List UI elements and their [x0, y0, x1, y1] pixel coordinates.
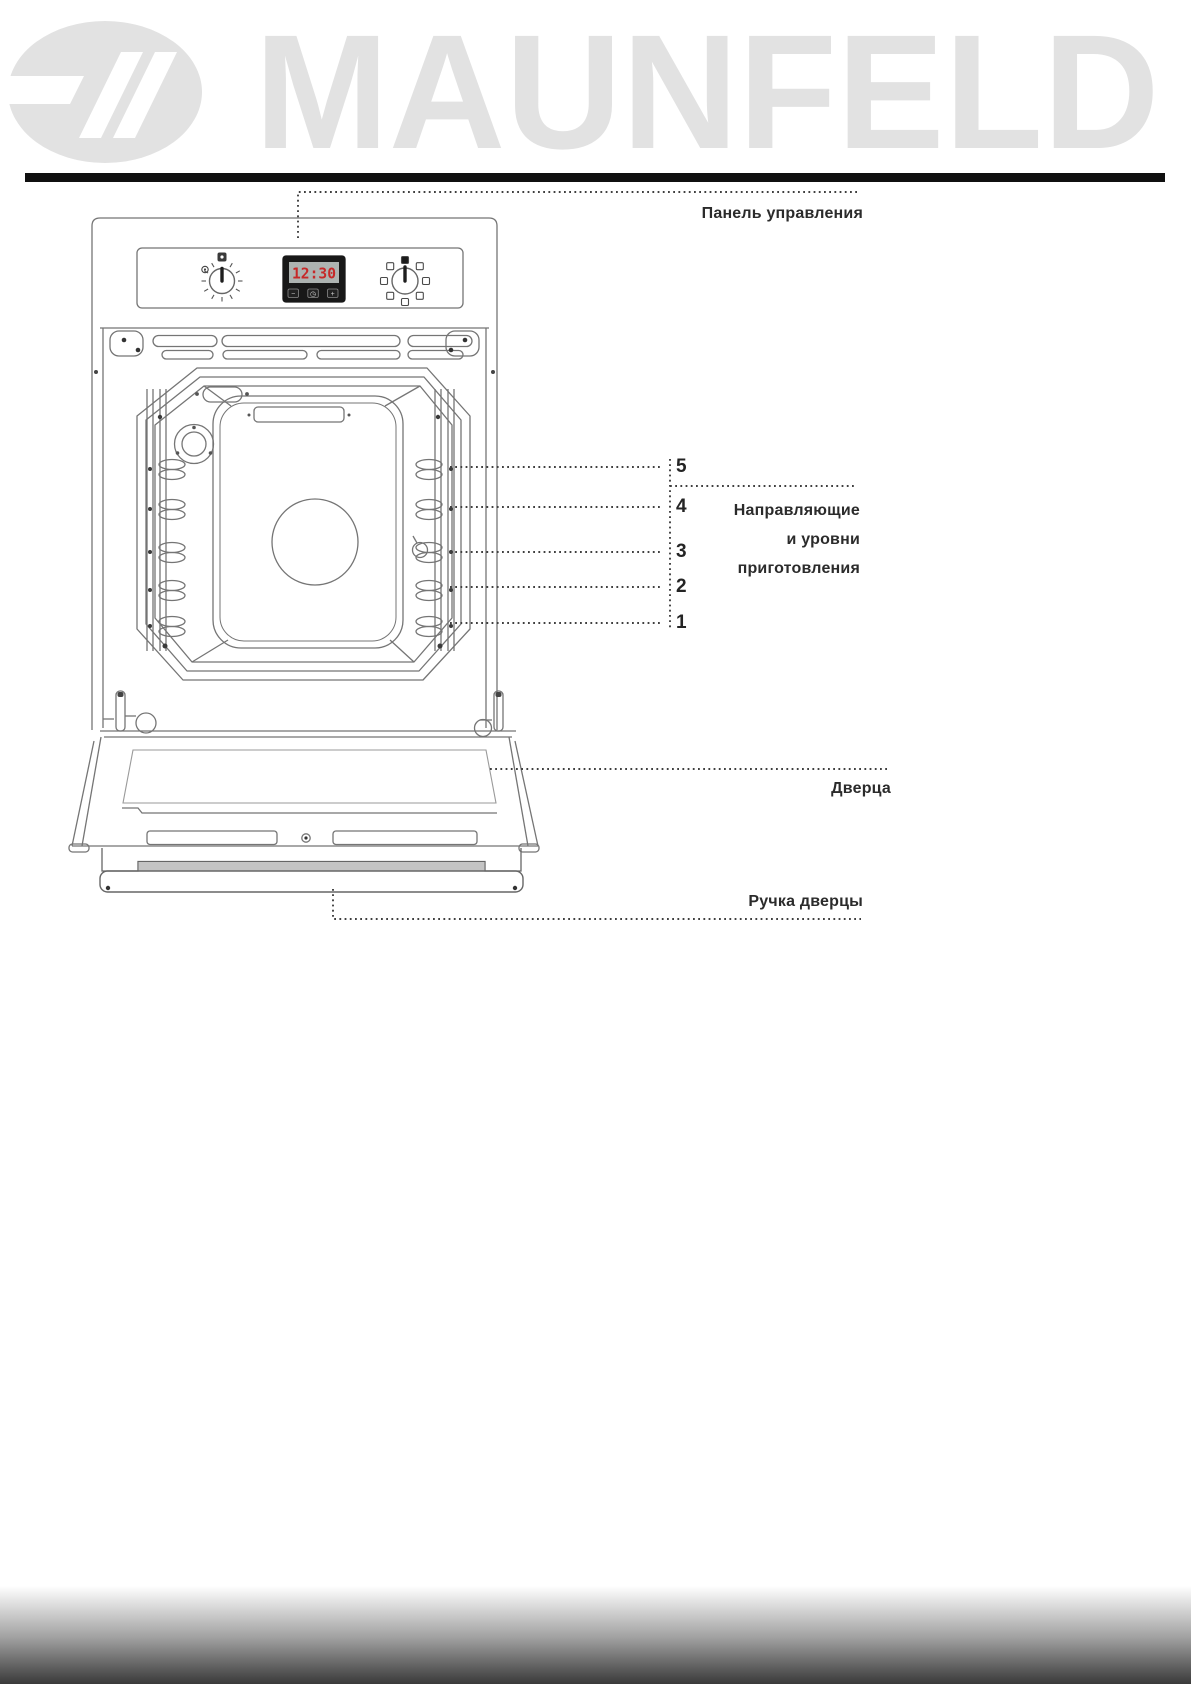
fan-intake	[175, 425, 214, 464]
manual-page: MAUNFELD	[0, 0, 1191, 1684]
timer-icon: ◷	[310, 291, 316, 298]
temperature-knob	[202, 253, 243, 302]
function-knob	[381, 257, 430, 306]
door-handle	[100, 848, 523, 892]
shelf-rails-left	[147, 389, 185, 651]
oven-diagram: 12:30 − ◷ +	[0, 0, 1191, 1684]
level-number-4: 4	[676, 496, 700, 518]
label-guides-levels: Направляющие и уровни приготовления	[680, 496, 860, 583]
grill-bracket	[254, 407, 344, 422]
label-door: Дверца	[831, 780, 891, 798]
oven-mode-icon	[218, 253, 227, 262]
top-vents	[153, 336, 472, 360]
label-guides-line2: и уровни	[787, 531, 860, 548]
label-guides-line1: Направляющие	[734, 502, 860, 519]
plus-icon: +	[331, 291, 335, 298]
fan-circle	[272, 499, 358, 585]
leader-levels	[450, 459, 670, 629]
level-number-3: 3	[676, 541, 700, 563]
display-time: 12:30	[292, 265, 336, 283]
clock-display: 12:30 − ◷ +	[283, 256, 345, 302]
level-number-5: 5	[676, 456, 700, 478]
control-panel: 12:30 − ◷ +	[137, 248, 463, 308]
oven-door	[69, 731, 539, 852]
shelf-rails-right	[416, 389, 454, 651]
door-hinges	[103, 691, 503, 737]
display-buttons: − ◷ +	[288, 289, 338, 298]
page-footer-shade	[0, 1586, 1191, 1684]
oven-cavity	[137, 368, 470, 680]
label-guides-line3: приготовления	[738, 560, 860, 577]
level-number-2: 2	[676, 576, 700, 598]
cavity-back-wall	[213, 396, 428, 648]
level-number-1: 1	[676, 612, 700, 634]
label-control-panel: Панель управления	[702, 205, 863, 223]
label-door-handle: Ручка дверцы	[748, 893, 863, 911]
minus-icon: −	[291, 291, 295, 298]
